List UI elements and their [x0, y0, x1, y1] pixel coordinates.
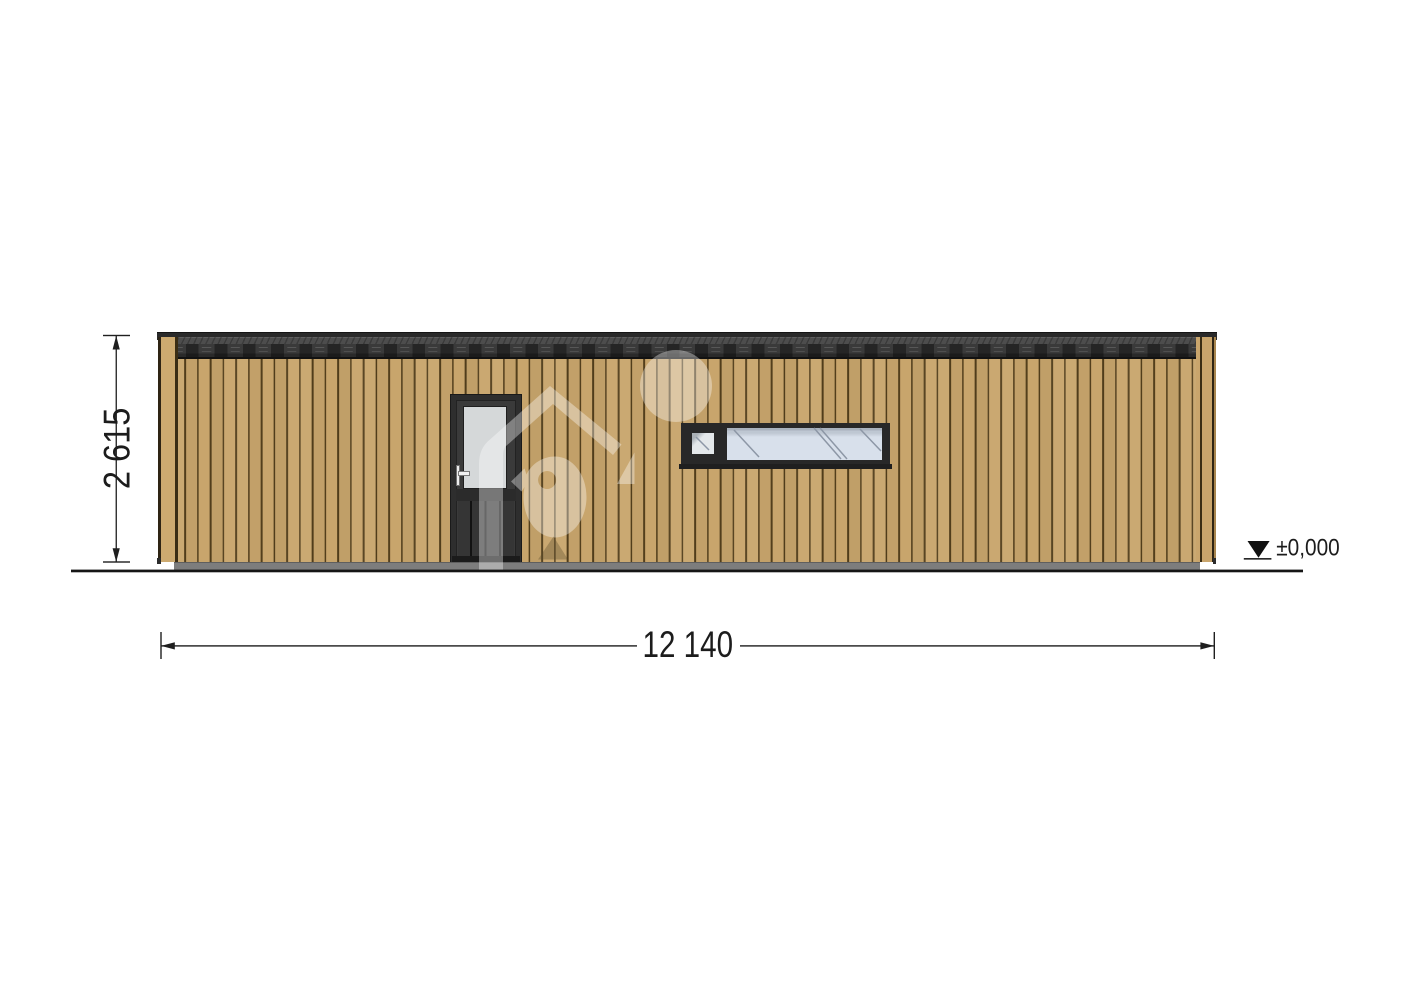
svg-text:2 615: 2 615 [97, 408, 138, 489]
svg-text:±0,000: ±0,000 [1276, 533, 1339, 561]
svg-text:12 140: 12 140 [643, 625, 734, 666]
